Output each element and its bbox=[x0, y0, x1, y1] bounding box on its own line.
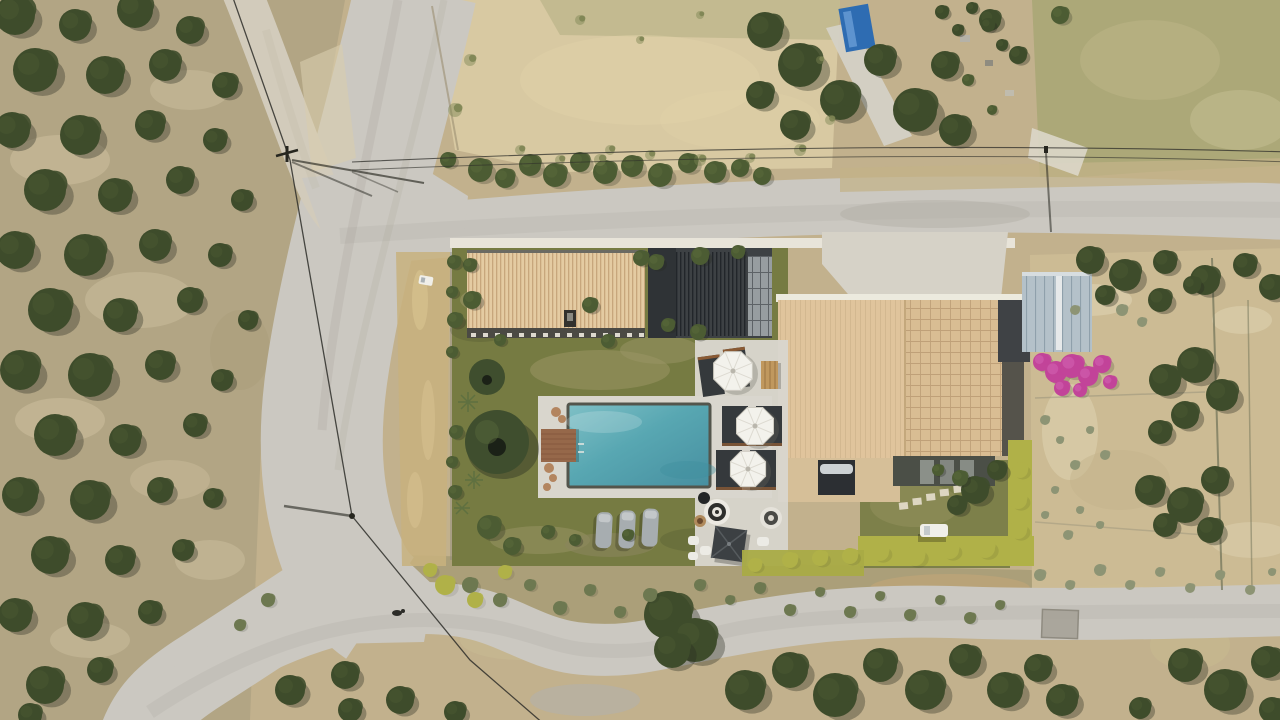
vegetation-highlight bbox=[174, 541, 185, 552]
vegetation-highlight bbox=[32, 293, 54, 315]
vegetation-highlight bbox=[1185, 278, 1194, 287]
vegetation-blob bbox=[789, 604, 796, 611]
vegetation-highlight bbox=[0, 235, 19, 254]
vegetation-highlight bbox=[952, 648, 968, 664]
vegetation-blob bbox=[267, 594, 276, 603]
vegetation-blob bbox=[878, 544, 889, 555]
vegetation-highlight bbox=[749, 84, 763, 98]
vegetation-highlight bbox=[1152, 368, 1168, 384]
vegetation-highlight bbox=[909, 674, 929, 694]
vegetation-highlight bbox=[28, 174, 49, 195]
vegetation-highlight bbox=[1079, 249, 1093, 263]
vegetation-highlight bbox=[464, 260, 471, 267]
vegetation-blob bbox=[1249, 585, 1255, 591]
vegetation-highlight bbox=[106, 302, 123, 319]
vegetation-highlight bbox=[1171, 652, 1188, 669]
vegetation-blob bbox=[619, 606, 626, 613]
vegetation-blob bbox=[1159, 567, 1165, 573]
vegetation-blob bbox=[819, 587, 825, 593]
vegetation-highlight bbox=[989, 462, 999, 472]
vegetation-blob bbox=[829, 115, 835, 121]
vegetation-highlight bbox=[776, 656, 794, 674]
vegetation-blob bbox=[1039, 569, 1046, 576]
vegetation-highlight bbox=[1053, 8, 1062, 17]
vegetation-highlight bbox=[4, 354, 24, 374]
vegetation-highlight bbox=[936, 7, 943, 14]
vegetation-blob bbox=[948, 542, 959, 553]
vegetation-highlight bbox=[112, 428, 128, 444]
vegetation-blob bbox=[609, 145, 615, 151]
road-dark-patch bbox=[840, 200, 1030, 228]
vegetation-blob bbox=[759, 582, 766, 589]
road-repair-patch bbox=[1042, 609, 1079, 638]
parked-car-driveway bbox=[918, 524, 948, 542]
vegetation-highlight bbox=[692, 326, 700, 334]
vegetation-highlight bbox=[1204, 469, 1218, 483]
vegetation-highlight bbox=[1208, 674, 1229, 695]
vegetation-highlight bbox=[1155, 516, 1167, 528]
vegetation-blob bbox=[1079, 506, 1084, 511]
vegetation-highlight bbox=[658, 636, 676, 654]
vegetation-blob bbox=[559, 602, 568, 611]
vegetation-blob bbox=[849, 549, 859, 559]
vegetation-highlight bbox=[997, 40, 1003, 46]
vegetation-highlight bbox=[1056, 382, 1064, 390]
vegetation-highlight bbox=[755, 169, 764, 178]
vegetation-highlight bbox=[1097, 287, 1107, 297]
vegetation-highlight bbox=[545, 166, 557, 178]
vegetation-highlight bbox=[1062, 357, 1074, 369]
pool-shade bbox=[660, 461, 716, 479]
vegetation-blob bbox=[1089, 426, 1094, 431]
pergola-slats bbox=[676, 252, 748, 336]
grill bbox=[698, 492, 710, 504]
vegetation-blob bbox=[469, 578, 479, 588]
vegetation-blob bbox=[819, 56, 824, 61]
vegetation-highlight bbox=[449, 314, 457, 322]
vegetation-blob bbox=[589, 584, 596, 591]
vegetation-blob bbox=[729, 595, 735, 601]
vegetation-blob bbox=[1044, 415, 1050, 421]
vegetation-highlight bbox=[140, 603, 152, 615]
vegetation-highlight bbox=[340, 701, 352, 713]
vegetation-highlight bbox=[1011, 48, 1020, 57]
vegetation-highlight bbox=[988, 106, 993, 111]
vegetation-highlight bbox=[1181, 351, 1199, 369]
vegetation-highlight bbox=[1150, 423, 1162, 435]
vegetation-highlight bbox=[1150, 291, 1162, 303]
vegetation-highlight bbox=[542, 527, 549, 534]
vegetation-blob bbox=[504, 566, 513, 575]
vegetation-blob bbox=[999, 600, 1005, 606]
vegetation-highlight bbox=[732, 247, 739, 254]
vegetation-blob bbox=[579, 15, 585, 21]
vegetation-blob bbox=[983, 539, 995, 551]
vegetation-blob bbox=[599, 154, 606, 161]
roof-slab bbox=[920, 460, 934, 484]
vegetation-highlight bbox=[169, 169, 183, 183]
vegetation-blob bbox=[1044, 511, 1049, 516]
vegetation-blob bbox=[443, 576, 455, 588]
vegetation-highlight bbox=[1209, 383, 1225, 399]
vegetation-blob bbox=[499, 594, 508, 603]
vegetation-blob bbox=[559, 155, 565, 161]
vegetation-highlight bbox=[505, 539, 514, 548]
vegetation-highlight bbox=[729, 674, 749, 694]
vegetation-highlight bbox=[1047, 363, 1058, 374]
vegetation-highlight bbox=[1200, 520, 1213, 533]
vegetation-highlight bbox=[389, 689, 403, 703]
vegetation-highlight bbox=[824, 84, 844, 104]
vegetation-highlight bbox=[495, 335, 501, 341]
vegetation-highlight bbox=[867, 48, 883, 64]
vegetation-highlight bbox=[751, 16, 769, 34]
vegetation-highlight bbox=[602, 336, 609, 343]
vegetation-blob bbox=[1141, 317, 1147, 323]
vegetation-blob bbox=[469, 54, 476, 61]
vegetation-blob bbox=[454, 104, 463, 113]
vegetation-highlight bbox=[1104, 377, 1111, 384]
vegetation-highlight bbox=[71, 606, 89, 624]
vegetation-highlight bbox=[35, 540, 54, 559]
vegetation-highlight bbox=[210, 246, 222, 258]
vegetation-blob bbox=[1271, 568, 1276, 573]
vegetation-highlight bbox=[982, 20, 989, 27]
vegetation-highlight bbox=[465, 293, 474, 302]
vegetation-highlight bbox=[447, 287, 453, 293]
vegetation-highlight bbox=[278, 678, 293, 693]
vegetation-highlight bbox=[150, 480, 163, 493]
pergola-glass-grid bbox=[748, 256, 772, 336]
vegetation-blob bbox=[1019, 463, 1029, 473]
house-roof-west bbox=[778, 300, 905, 458]
vegetation-highlight bbox=[148, 353, 163, 368]
vegetation-blob bbox=[699, 154, 706, 161]
vegetation-highlight bbox=[817, 678, 839, 700]
vegetation-highlight bbox=[1155, 253, 1167, 265]
vegetation-highlight bbox=[152, 53, 168, 69]
house-roof-east-tiled bbox=[905, 300, 1002, 456]
vegetation-blob bbox=[1104, 450, 1110, 456]
chimney-opening bbox=[567, 313, 573, 321]
vegetation-highlight bbox=[1171, 491, 1189, 509]
vegetation-highlight bbox=[783, 113, 798, 128]
vegetation-highlight bbox=[570, 535, 576, 541]
vegetation-highlight bbox=[1262, 277, 1275, 290]
vegetation-highlight bbox=[680, 155, 690, 165]
vegetation-blob bbox=[1129, 580, 1135, 586]
vegetation-blob bbox=[909, 609, 916, 616]
umbrella-pole bbox=[753, 424, 758, 429]
vegetation-blob bbox=[1067, 530, 1073, 536]
vegetation-blob bbox=[1069, 580, 1075, 586]
vegetation-highlight bbox=[706, 163, 717, 174]
vegetation-highlight bbox=[782, 48, 804, 70]
vegetation-highlight bbox=[233, 191, 244, 202]
vegetation-highlight bbox=[450, 427, 457, 434]
vegetation-highlight bbox=[967, 3, 973, 9]
vegetation-highlight bbox=[650, 256, 658, 264]
vegetation-highlight bbox=[953, 25, 959, 31]
vegetation-highlight bbox=[693, 249, 702, 258]
vegetation-highlight bbox=[635, 252, 643, 260]
vegetation-highlight bbox=[17, 53, 39, 75]
vegetation-highlight bbox=[897, 93, 919, 115]
vegetation-highlight bbox=[446, 703, 457, 714]
vegetation-blob bbox=[1099, 564, 1106, 571]
vegetation-highlight bbox=[205, 131, 217, 143]
vegetation-highlight bbox=[949, 497, 959, 507]
vegetation-highlight bbox=[521, 156, 532, 167]
guesthouse-north-eave bbox=[467, 250, 645, 253]
vegetation-blob bbox=[789, 553, 799, 563]
vegetation-highlight bbox=[240, 312, 250, 322]
vegetation-blob bbox=[1189, 583, 1195, 589]
vegetation-highlight bbox=[179, 19, 193, 33]
umbrella-pole bbox=[746, 467, 751, 472]
aerial-photo-stage bbox=[0, 0, 1280, 720]
vegetation-highlight bbox=[1074, 385, 1081, 392]
vegetation-highlight bbox=[866, 652, 883, 669]
vegetation-blob bbox=[699, 579, 706, 586]
vegetation-highlight bbox=[185, 416, 197, 428]
vegetation-highlight bbox=[963, 75, 969, 81]
vegetation-highlight bbox=[74, 484, 94, 504]
vegetation-highlight bbox=[1235, 256, 1247, 268]
vegetation-blob bbox=[239, 619, 246, 626]
wooden-bench bbox=[761, 361, 781, 389]
vegetation-highlight bbox=[90, 60, 109, 79]
vegetation-highlight bbox=[6, 481, 24, 499]
guesthouse bbox=[467, 250, 645, 338]
vegetation-blob bbox=[519, 145, 525, 151]
vegetation-highlight bbox=[662, 320, 669, 327]
vegetation-blob bbox=[879, 591, 885, 597]
vegetation-highlight bbox=[479, 518, 491, 530]
solar-tank bbox=[820, 464, 853, 474]
vegetation-blob bbox=[1219, 570, 1225, 576]
vegetation-highlight bbox=[942, 118, 958, 134]
greenhouse-edge bbox=[1022, 272, 1092, 276]
vegetation-highlight bbox=[623, 157, 634, 168]
vegetation-blob bbox=[849, 606, 856, 613]
vegetation-highlight bbox=[1254, 650, 1270, 666]
vegetation-blob bbox=[1074, 305, 1080, 311]
vegetation-blob bbox=[1099, 521, 1104, 526]
vegetation-highlight bbox=[62, 13, 78, 29]
vegetation-blob bbox=[699, 11, 704, 16]
vegetation-highlight bbox=[101, 182, 118, 199]
vegetation-blob bbox=[754, 559, 763, 568]
vegetation-blob bbox=[1054, 486, 1059, 491]
wooden-deck bbox=[541, 429, 579, 462]
vegetation-highlight bbox=[205, 490, 215, 500]
vegetation-highlight bbox=[180, 290, 193, 303]
vegetation-highlight bbox=[934, 54, 948, 68]
vegetation-blob bbox=[913, 547, 925, 559]
vegetation-highlight bbox=[470, 161, 482, 173]
vegetation-highlight bbox=[497, 170, 507, 180]
vegetation-highlight bbox=[650, 166, 662, 178]
vegetation-highlight bbox=[449, 487, 456, 494]
vegetation-blob bbox=[939, 595, 945, 601]
vegetation-highlight bbox=[90, 660, 103, 673]
vegetation-highlight bbox=[1138, 478, 1153, 493]
guesthouse-roof bbox=[467, 250, 645, 332]
vegetation-highlight bbox=[954, 472, 962, 480]
vegetation-highlight bbox=[30, 670, 49, 689]
vegetation-highlight bbox=[68, 239, 89, 260]
greenhouse-frame bbox=[1056, 274, 1062, 350]
vegetation-highlight bbox=[1112, 263, 1128, 279]
vegetation-highlight bbox=[334, 664, 348, 678]
vegetation-highlight bbox=[72, 358, 94, 380]
vegetation-blob bbox=[819, 551, 829, 561]
umbrella-pole bbox=[731, 369, 736, 374]
vegetation-blob bbox=[969, 612, 976, 619]
vegetation-highlight bbox=[991, 676, 1009, 694]
vegetation-highlight bbox=[447, 347, 453, 353]
vegetation-highlight bbox=[1, 602, 18, 619]
vegetation-blob bbox=[1059, 436, 1064, 441]
guesthouse-south-eave bbox=[467, 328, 645, 338]
vegetation-highlight bbox=[448, 257, 455, 264]
vegetation-highlight bbox=[1095, 357, 1104, 366]
vegetation-highlight bbox=[1049, 688, 1065, 704]
vegetation-blob bbox=[649, 589, 658, 598]
vegetation-highlight bbox=[447, 457, 453, 463]
solar-water-heater bbox=[818, 460, 855, 495]
vegetation-blob bbox=[474, 593, 484, 603]
vegetation-highlight bbox=[1174, 404, 1188, 418]
vegetation-highlight bbox=[215, 75, 228, 88]
vegetation-highlight bbox=[64, 119, 84, 139]
main-house bbox=[776, 294, 1024, 510]
vegetation-highlight bbox=[1262, 700, 1275, 713]
vegetation-highlight bbox=[108, 548, 123, 563]
vegetation-highlight bbox=[733, 161, 742, 170]
vegetation-blob bbox=[1121, 304, 1128, 311]
vegetation-highlight bbox=[1027, 657, 1041, 671]
vegetation-highlight bbox=[38, 419, 59, 440]
vegetation-highlight bbox=[1035, 355, 1044, 364]
vegetation-highlight bbox=[584, 299, 592, 307]
vegetation-highlight bbox=[138, 113, 153, 128]
aerial-photo bbox=[0, 0, 1280, 720]
vegetation-blob bbox=[429, 564, 438, 573]
vegetation-blob bbox=[1016, 492, 1027, 503]
vegetation-blob bbox=[1074, 460, 1080, 466]
vegetation-highlight bbox=[1080, 368, 1090, 378]
vegetation-highlight bbox=[933, 465, 939, 471]
vegetation-highlight bbox=[1131, 699, 1142, 710]
vegetation-highlight bbox=[20, 706, 32, 718]
vegetation-blob bbox=[639, 36, 644, 41]
vegetation-blob bbox=[1016, 522, 1027, 533]
vegetation-highlight bbox=[623, 530, 629, 536]
vegetation-highlight bbox=[142, 233, 158, 249]
vegetation-highlight bbox=[213, 371, 224, 382]
vegetation-blob bbox=[529, 579, 536, 586]
